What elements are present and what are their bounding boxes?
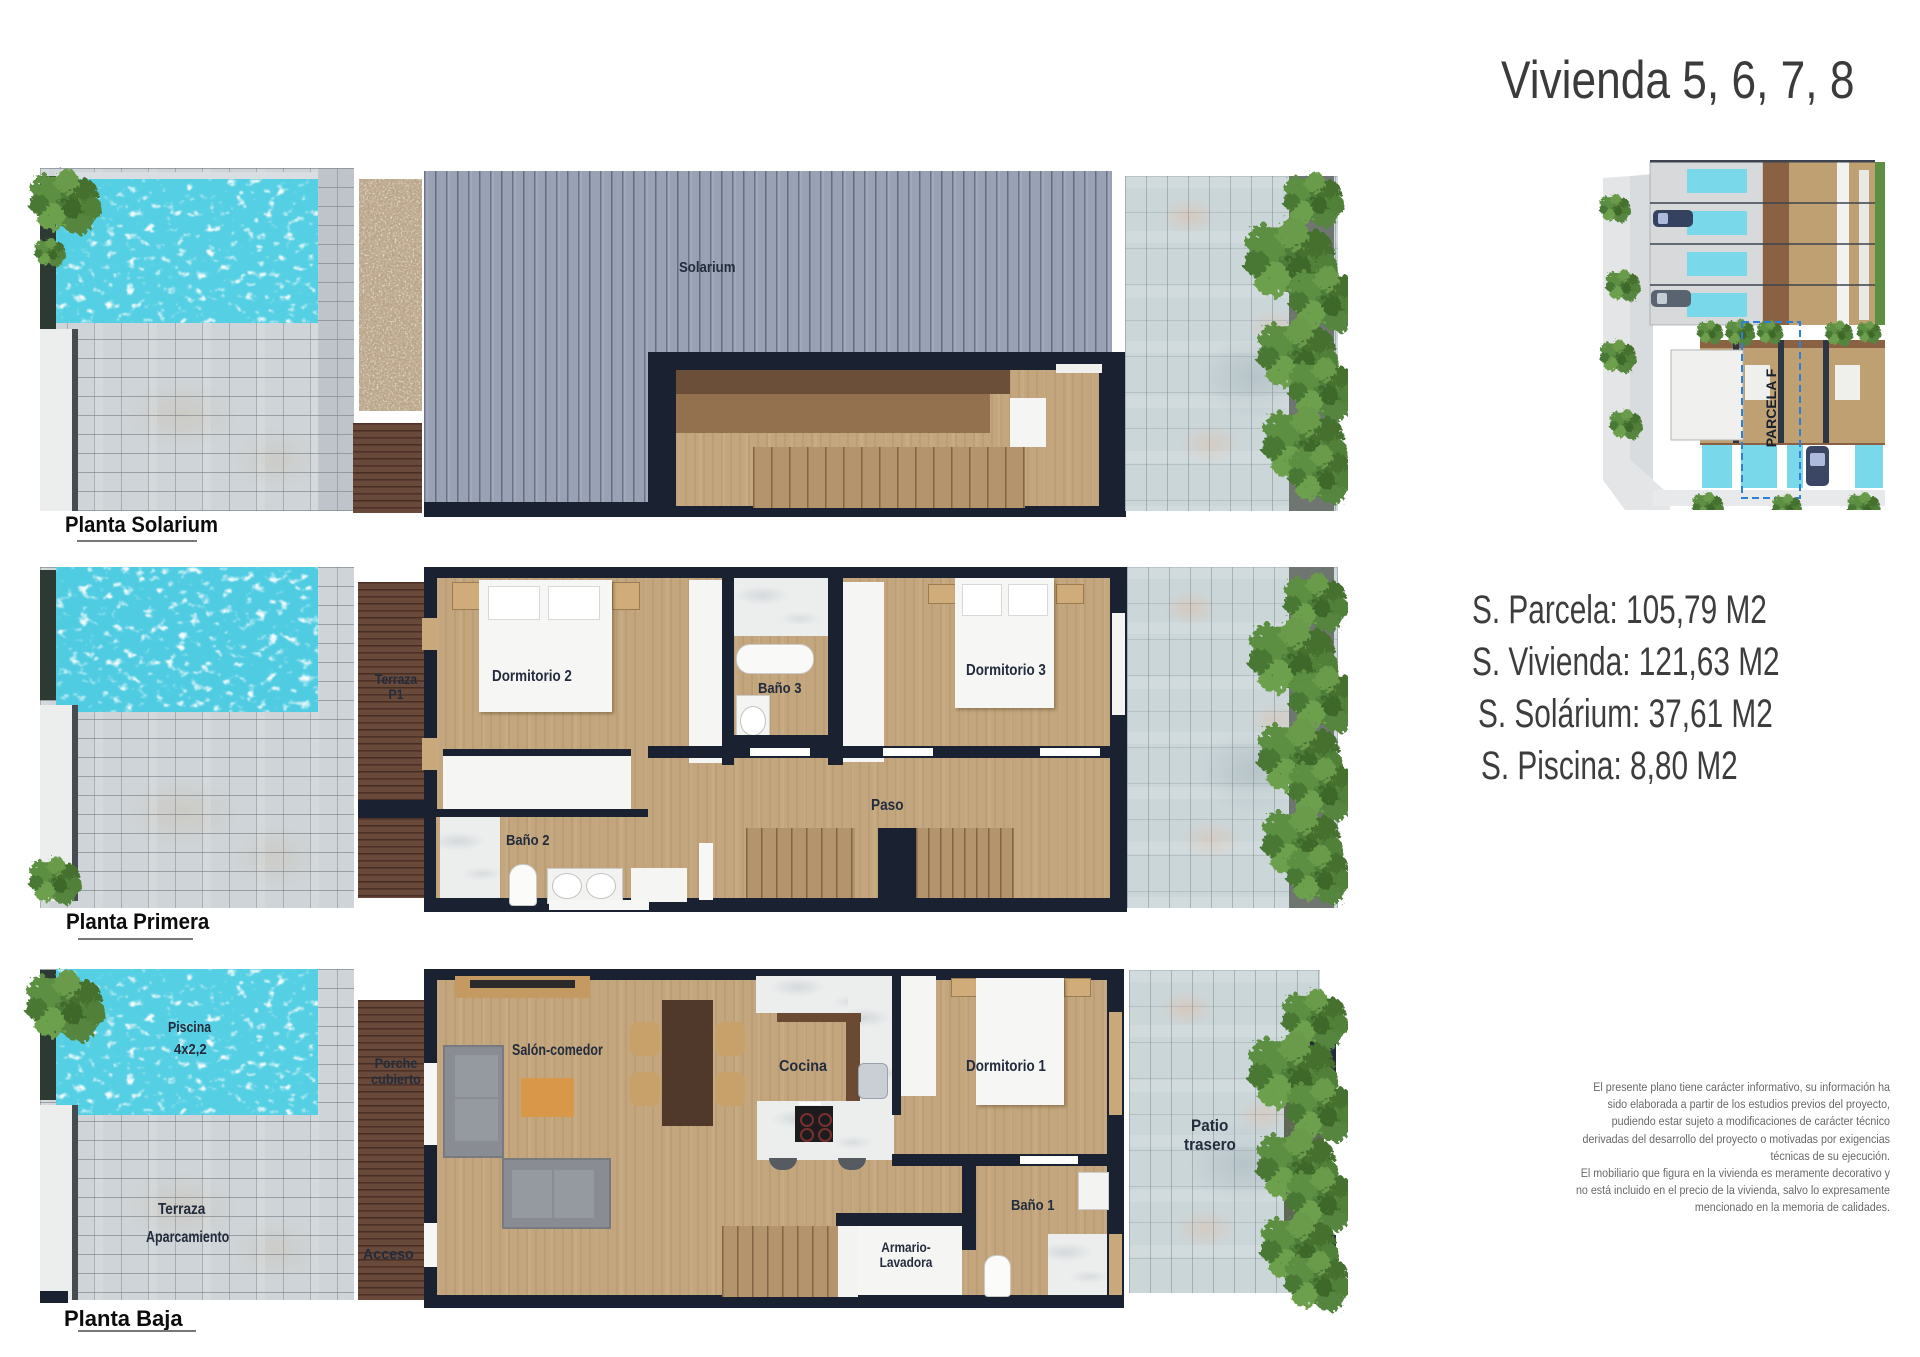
svg-text:PARCELA F: PARCELA F xyxy=(1763,368,1779,447)
